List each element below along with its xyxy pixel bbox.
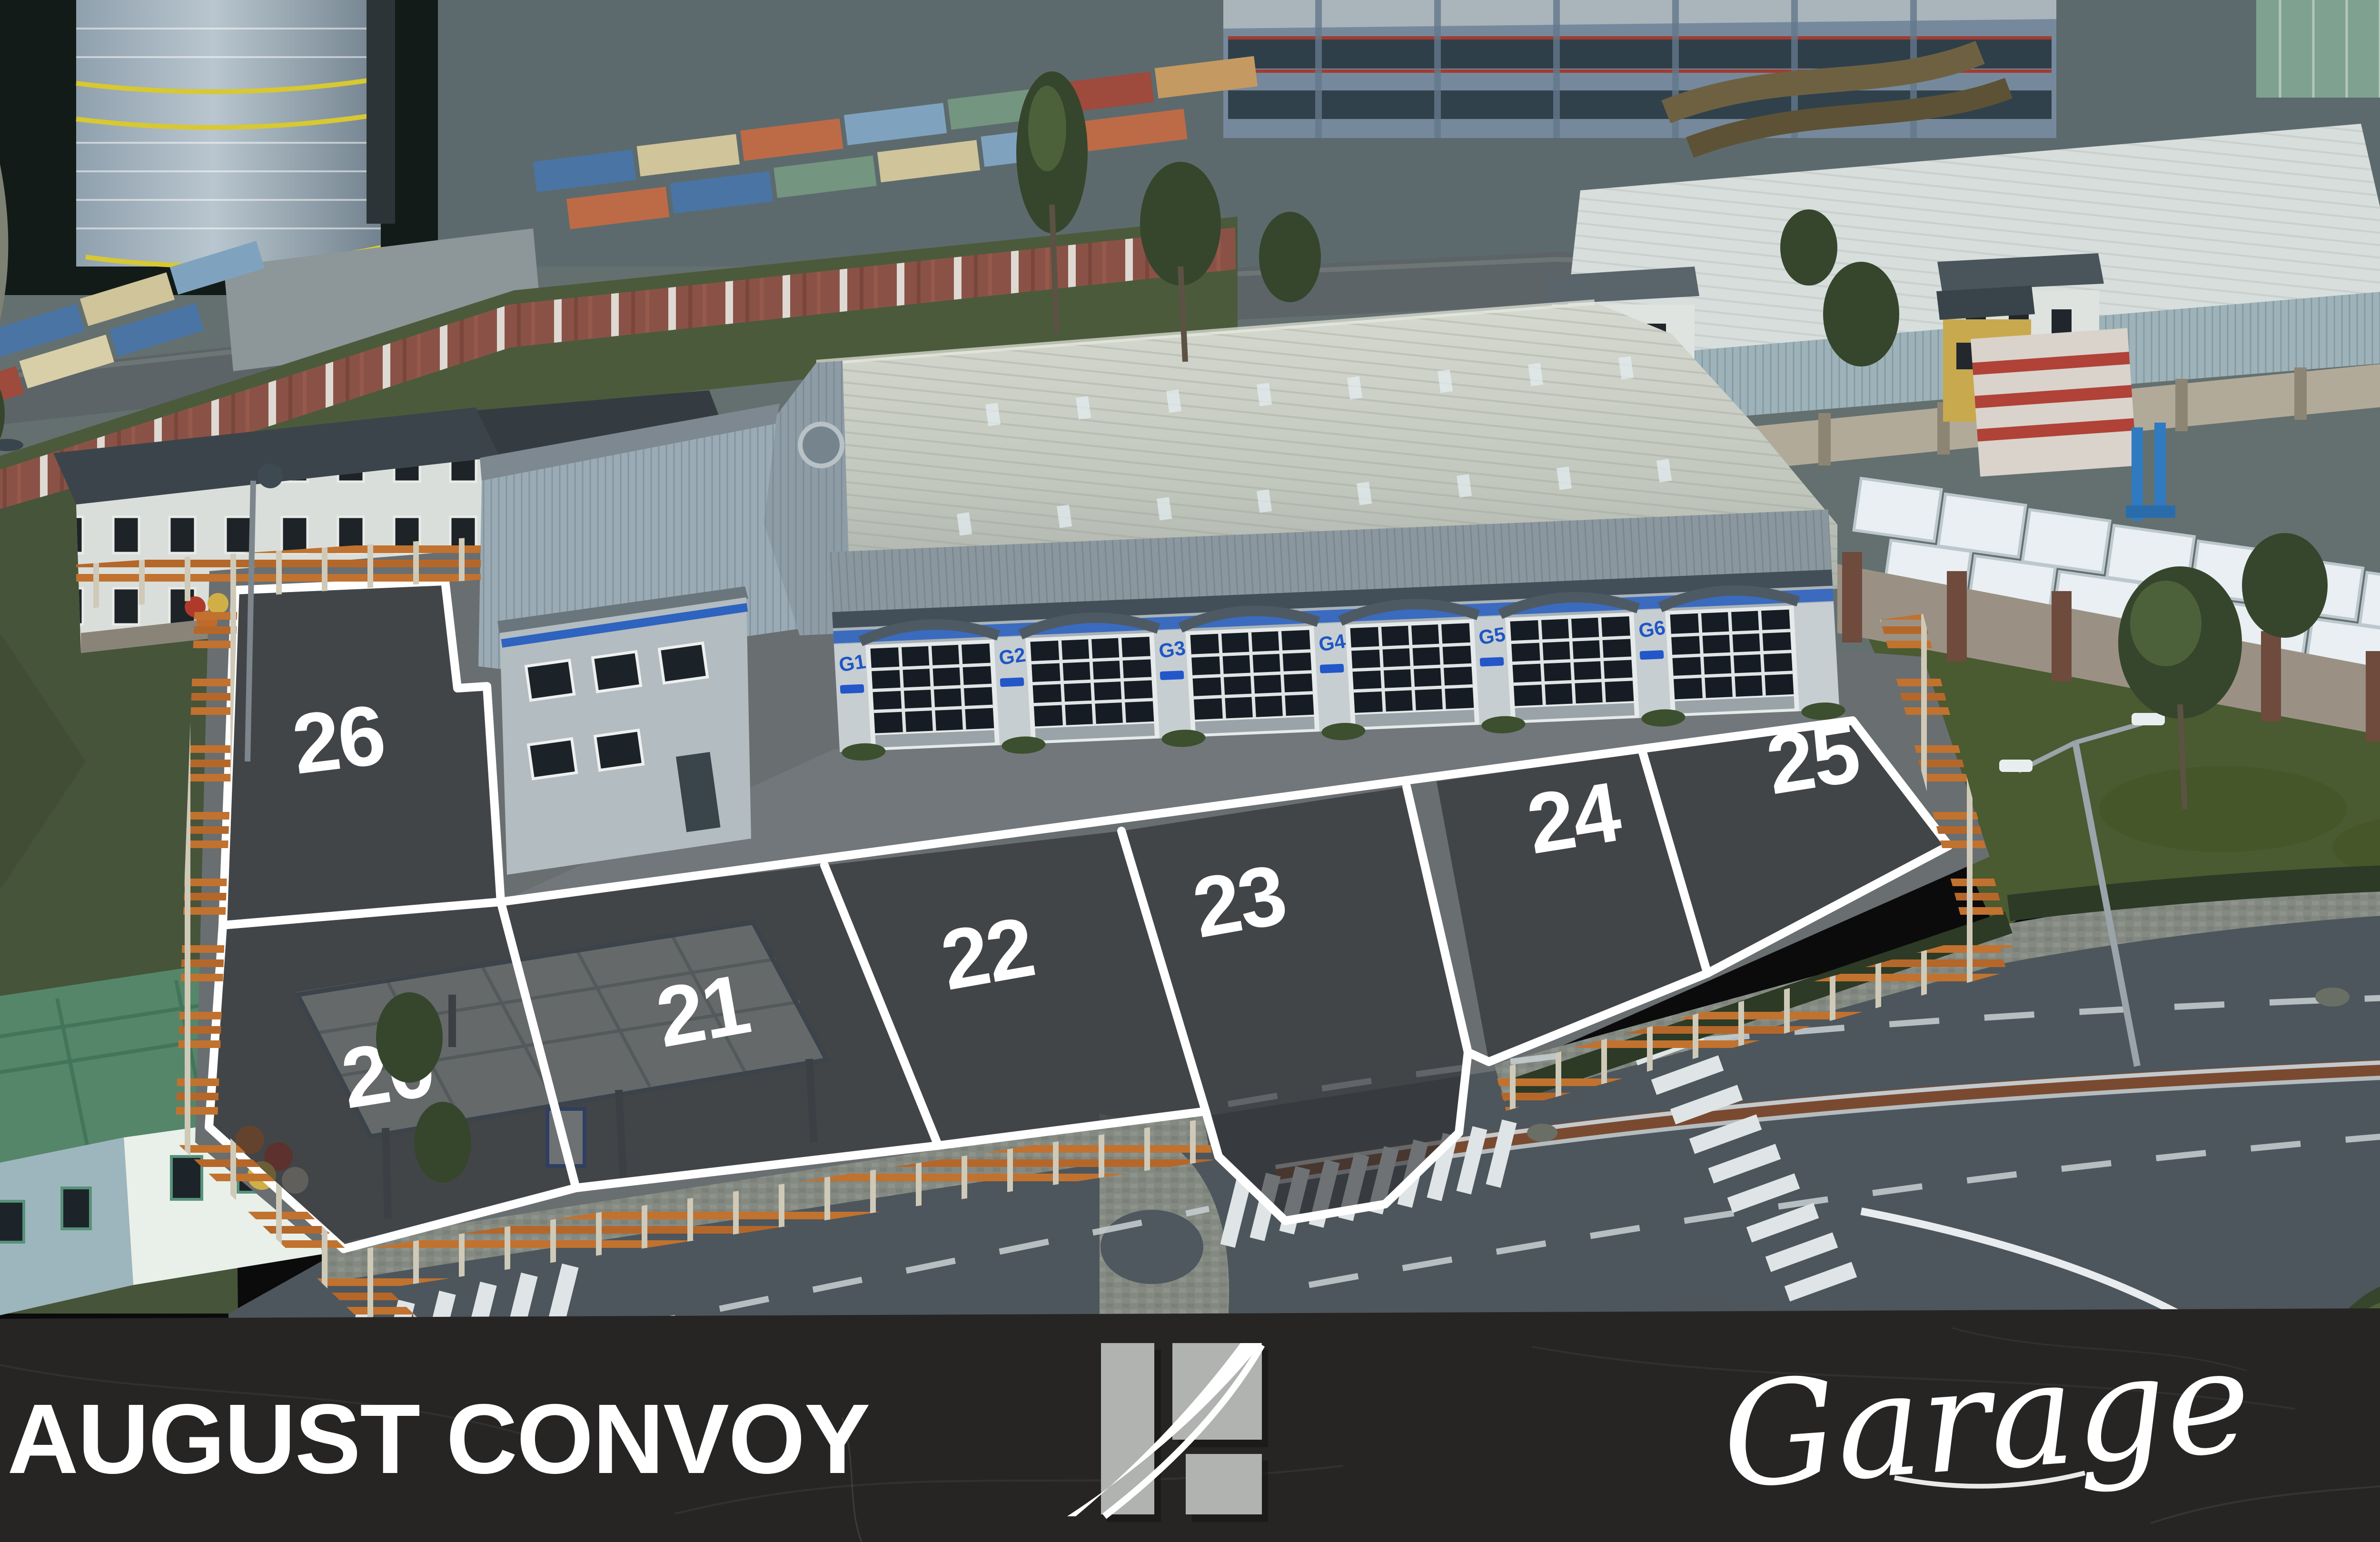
door-label-g5: G5 <box>1477 623 1507 649</box>
logo-block-bottom-right <box>1186 1454 1262 1514</box>
door-label-g2: G2 <box>997 643 1027 669</box>
screenshot-root: G1 G2 G3 G4 G5 G6 <box>0 0 2380 1542</box>
zone-number-25: 25 <box>1760 704 1864 812</box>
zone-number-24: 24 <box>1521 764 1627 872</box>
door-label-g4: G4 <box>1317 630 1347 656</box>
garage-office <box>497 586 751 875</box>
zone-number-22: 22 <box>934 899 1040 1008</box>
zone-number-26: 26 <box>288 687 389 792</box>
banner-title: AUGUST CONVOY <box>7 1384 869 1494</box>
zone-number-23: 23 <box>1186 847 1292 956</box>
vent-circle-icon <box>800 424 842 466</box>
door-label-g3: G3 <box>1157 636 1187 662</box>
garage-map-scene: G1 G2 G3 G4 G5 G6 <box>0 0 2380 1542</box>
logo-bar-left <box>1101 1343 1154 1514</box>
door-label-g6: G6 <box>1637 616 1667 642</box>
manhole <box>2315 988 2350 1007</box>
banner: AUGUST CONVOY Garage <box>0 1308 2380 1542</box>
zone-number-21: 21 <box>650 956 755 1065</box>
door-label-g1: G1 <box>837 650 867 676</box>
red-striped-building <box>1971 328 2137 476</box>
